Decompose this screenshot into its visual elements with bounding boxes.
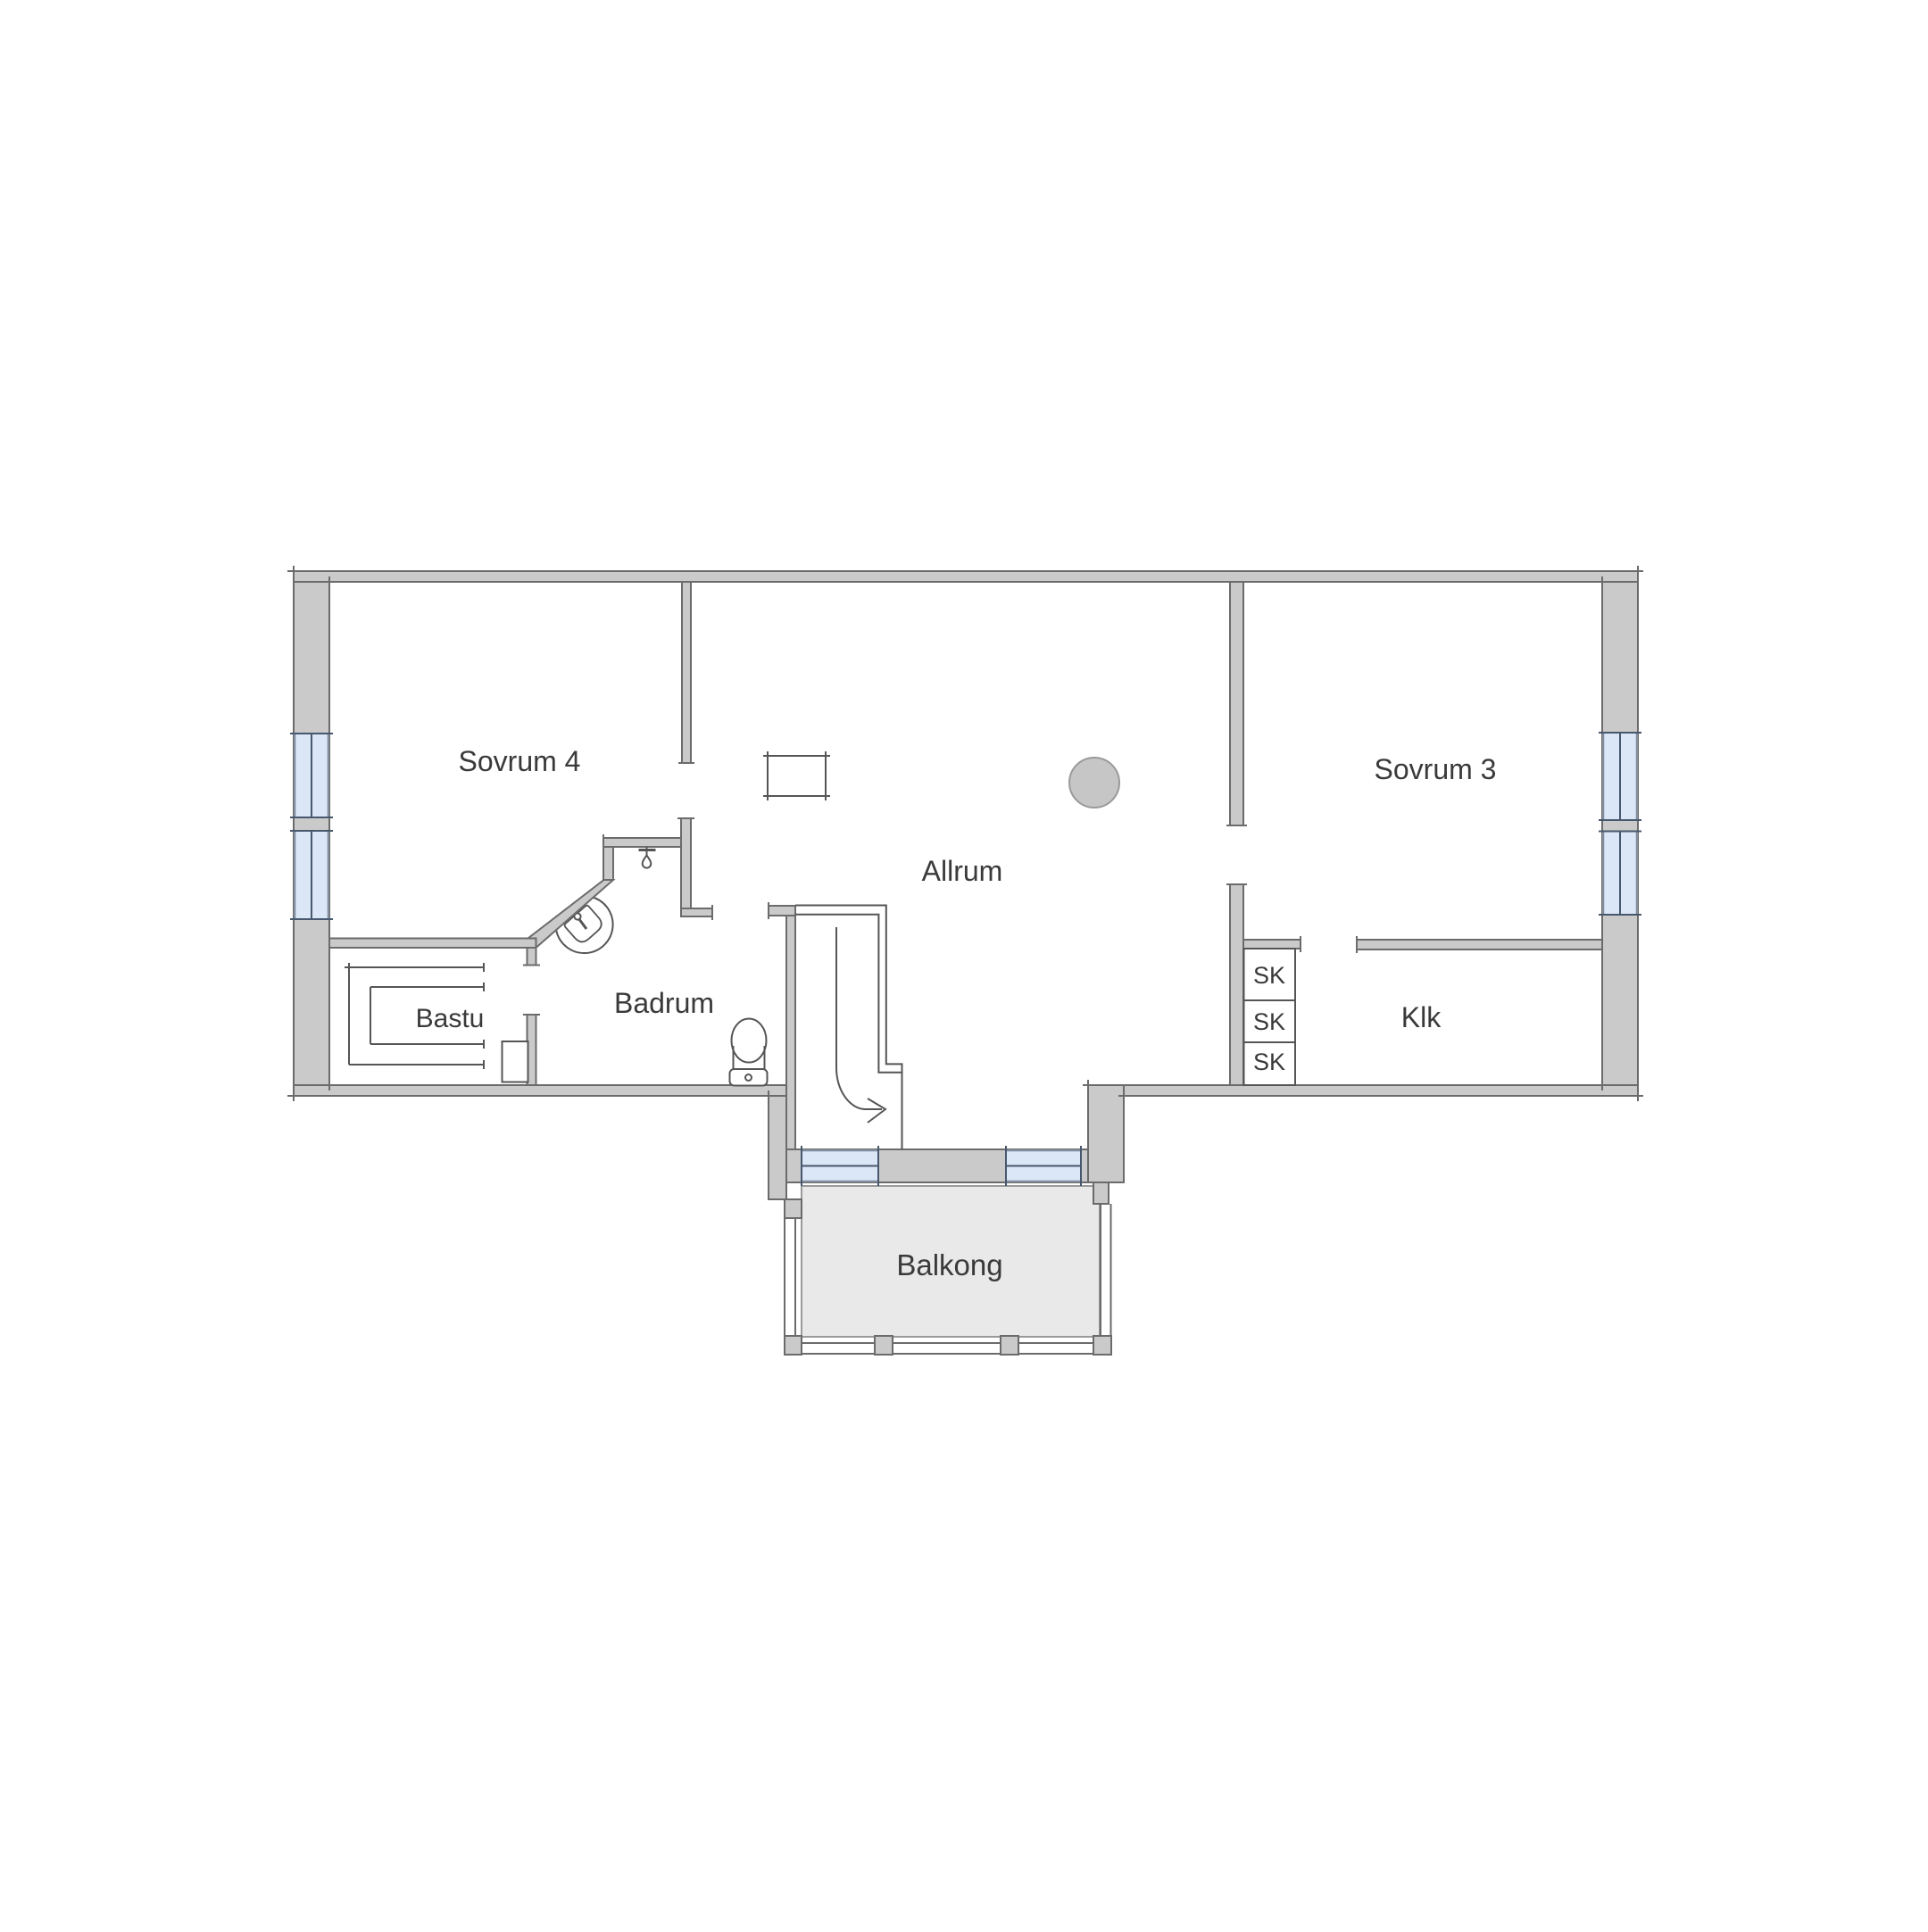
svg-text:Badrum: Badrum [614, 987, 714, 1019]
svg-text:SK: SK [1253, 1049, 1285, 1075]
svg-text:Sovrum 3: Sovrum 3 [1375, 753, 1497, 785]
svg-text:Bastu: Bastu [416, 1004, 485, 1033]
svg-text:Balkong: Balkong [896, 1248, 1002, 1281]
svg-text:Sovrum 4: Sovrum 4 [459, 745, 581, 777]
svg-text:SK: SK [1253, 1008, 1285, 1035]
svg-text:Allrum: Allrum [922, 855, 1003, 887]
svg-text:SK: SK [1253, 962, 1285, 989]
svg-text:Klk: Klk [1401, 1001, 1442, 1033]
